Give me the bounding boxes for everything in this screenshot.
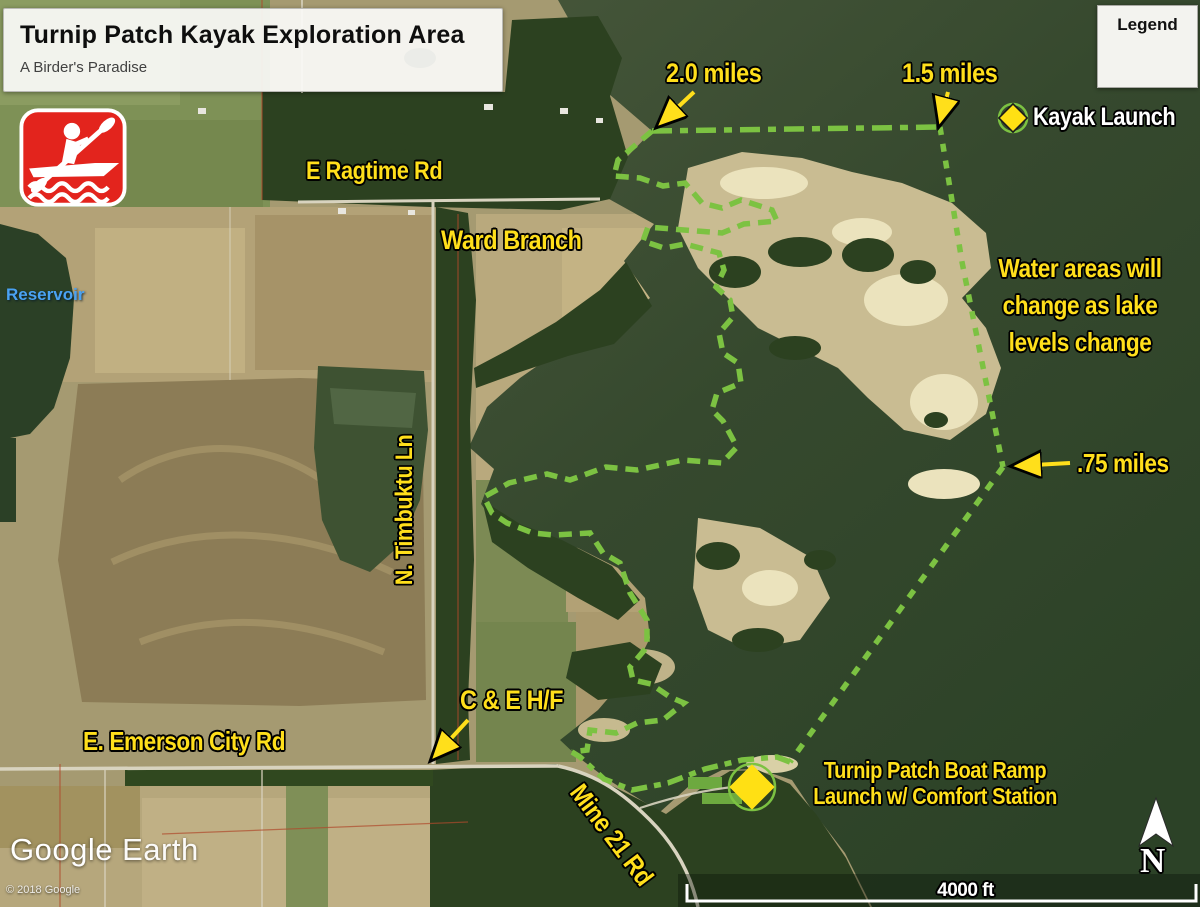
legend-title: Legend [1098,15,1197,35]
distance-label-75-miles: .75 miles [1077,448,1169,479]
kayaker-icon [18,107,128,208]
kayak-launch-marker-legend [999,104,1027,132]
title-box: Turnip Patch Kayak Exploration Area A Bi… [3,8,503,92]
map-subtitle: A Birder's Paradise [20,59,486,76]
google-earth-logo-google: Google [10,832,113,867]
north-arrow-letter: N [1140,841,1165,881]
road-label-ward-branch: Ward Branch [441,225,582,256]
distance-label-1-5-miles: 1.5 miles [902,58,997,89]
boat-ramp-label: Turnip Patch Boat Ramp Launch w/ Comfort… [813,757,1057,809]
water-note-line3: levels change [971,324,1189,361]
road-label-timbuktu: N. Timbuktu Ln [391,425,419,596]
water-note-line2: change as lake [971,287,1189,324]
boat-ramp-line2: Launch w/ Comfort Station [813,783,1057,809]
legend-box: Legend [1097,5,1198,88]
water-note-line1: Water areas will [971,250,1189,287]
map-title: Turnip Patch Kayak Exploration Area [20,21,486,50]
copyright-text: © 2018 Google [6,884,80,896]
distance-label-2-0-miles: 2.0 miles [666,58,761,89]
map-canvas: Turnip Patch Kayak Exploration Area A Bi… [0,0,1200,907]
road-label-ce-hf: C & E H/F [460,685,563,716]
google-earth-logo-earth: Earth [122,832,199,867]
road-label-emerson: E. Emerson City Rd [83,726,285,757]
scale-bar-label: 4000 ft [908,880,1023,902]
water-note: Water areas will change as lake levels c… [971,250,1189,361]
boat-ramp-line1: Turnip Patch Boat Ramp [813,757,1057,783]
road-label-ragtime: E Ragtime Rd [306,157,442,186]
legend-item-kayak-launch-label: Kayak Launch [1033,103,1175,132]
kayak-launch-marker-map [729,764,775,810]
google-earth-logo: Google Earth [10,832,199,868]
water-label-reservoir: Reservoir [6,285,84,305]
